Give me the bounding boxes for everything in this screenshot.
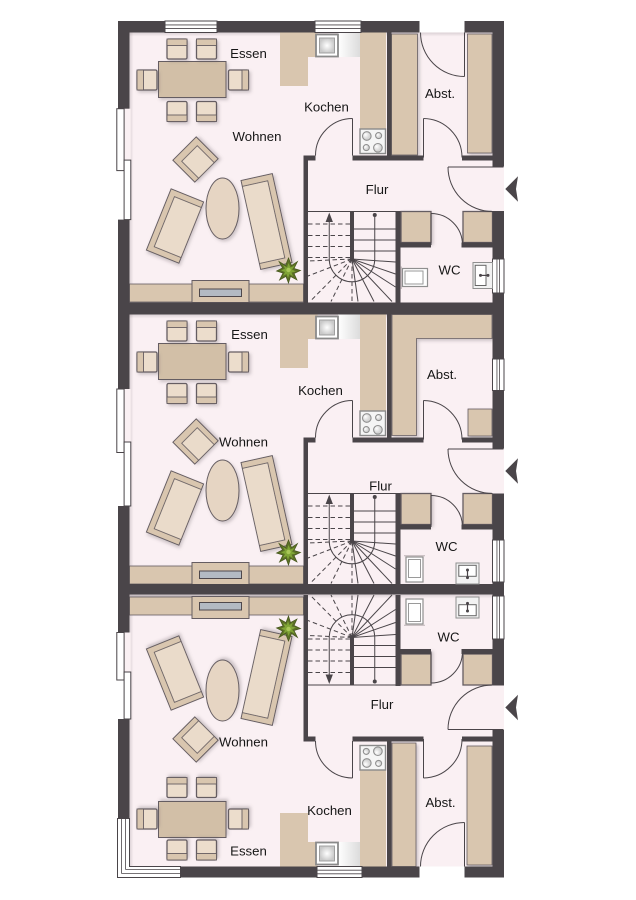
- svg-text:Flur: Flur: [369, 479, 392, 494]
- svg-text:Wohnen: Wohnen: [219, 435, 268, 450]
- svg-text:Essen: Essen: [230, 844, 267, 859]
- svg-text:Abst.: Abst.: [425, 86, 455, 101]
- svg-text:Essen: Essen: [231, 327, 268, 342]
- svg-text:Abst.: Abst.: [425, 795, 455, 810]
- svg-text:WC: WC: [436, 539, 458, 554]
- svg-text:WC: WC: [439, 263, 461, 278]
- svg-text:Wohnen: Wohnen: [233, 129, 282, 144]
- svg-text:Kochen: Kochen: [304, 100, 349, 115]
- svg-text:Essen: Essen: [230, 46, 267, 61]
- svg-text:Flur: Flur: [366, 182, 389, 197]
- svg-text:Kochen: Kochen: [307, 803, 352, 818]
- svg-text:Wohnen: Wohnen: [219, 735, 268, 750]
- svg-text:Kochen: Kochen: [298, 383, 343, 398]
- svg-text:WC: WC: [438, 630, 460, 645]
- svg-text:Flur: Flur: [371, 697, 394, 712]
- svg-text:Abst.: Abst.: [427, 367, 457, 382]
